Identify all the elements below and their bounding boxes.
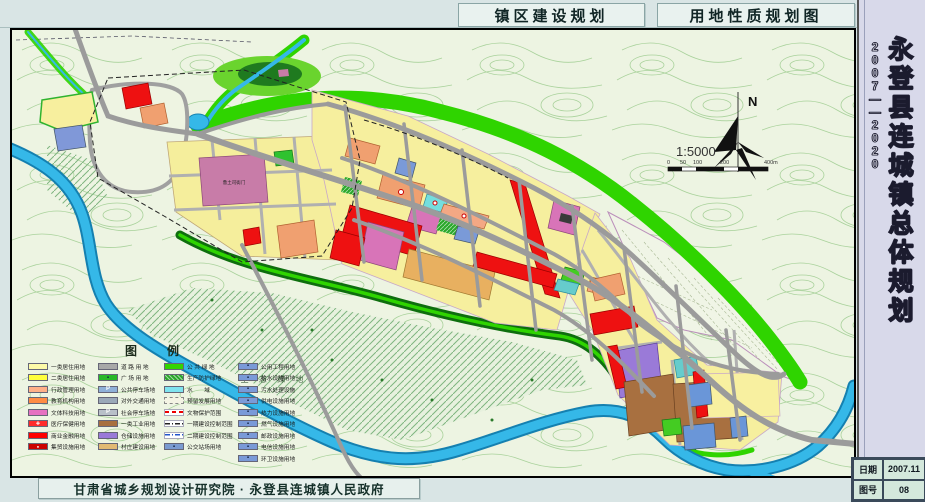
date-label: 日期: [853, 459, 883, 480]
legend-label: 文物保护范围: [187, 408, 221, 417]
legend-label: 集贸设施用地: [51, 442, 85, 451]
plan-title: 永登县连城镇总体规划: [885, 36, 913, 326]
legend-column: 一类居住用地二类居住用地行政管理用地教育机构用地文体科技用地医疗保健用地商业金融…: [28, 362, 94, 462]
legend-label: 道 路 用 地: [121, 362, 149, 371]
legend-swatch: [98, 443, 118, 450]
parcel-utility: [683, 423, 716, 450]
legend-swatch: [238, 443, 258, 450]
legend-swatch: [238, 386, 258, 393]
legend-swatch: [28, 363, 48, 370]
sheet-title-left: 镇区建设规划: [458, 3, 645, 27]
legend-item: 预留发展用地: [164, 397, 234, 405]
legend-label: 供电设施用地: [261, 396, 295, 405]
title-block-table: 日期 2007.11 图号 08: [851, 457, 925, 502]
title-sidebar: 永登县连城镇总体规划 2007——2020: [857, 0, 925, 500]
legend-label: 村庄建设用地: [121, 442, 155, 451]
sheet-title-right: 用地性质规划图: [657, 3, 855, 27]
legend-swatch: [164, 432, 184, 439]
legend-label: 生产防护绿地: [187, 373, 221, 382]
historic-site-label: 鲁土司衙门: [223, 179, 246, 186]
legend-swatch: [98, 432, 118, 439]
legend-item: 对外交通用地: [98, 397, 160, 405]
legend-item: 热力设施用地: [238, 408, 302, 416]
legend-item: 村庄建设用地: [98, 443, 160, 451]
legend-label: 公 共 绿 地: [187, 362, 215, 371]
legend-swatch: [164, 409, 184, 416]
legend-label: 水 域: [187, 385, 210, 394]
legend-label: 污水处理设施: [261, 385, 295, 394]
legend-column: 道 路 用 地广 场 用 地公共停车场地对外交通用地社会停车场地一类工业用地仓储…: [98, 362, 160, 462]
legend-label: 邮政设施用地: [261, 431, 295, 440]
legend-item: 行政管理用地: [28, 385, 94, 393]
legend-item: 生产防护绿地: [164, 374, 234, 382]
legend-item: 二期建设控制范围: [164, 431, 234, 439]
legend-item: 二类居住用地: [28, 374, 94, 382]
plan-title-vertical: 永登县连城镇总体规划 2007——2020: [869, 0, 917, 500]
sheet-number-label: 图号: [853, 480, 883, 501]
legend-label: 燃气设施用地: [261, 419, 295, 428]
legend-swatch: [238, 432, 258, 439]
legend-swatch: [98, 397, 118, 404]
pond: [187, 114, 209, 130]
legend-item: 一类工业用地: [98, 420, 160, 428]
north-label: N: [748, 94, 757, 109]
parcel-utility: [54, 125, 86, 151]
legend-label: 一类居住用地: [51, 362, 85, 371]
legend-item: 环卫设施用地: [238, 454, 302, 462]
svg-text:200: 200: [720, 160, 729, 166]
legend-label: 社会停车场地: [121, 408, 155, 417]
legend-item: 供电设施用地: [238, 397, 302, 405]
legend-item: 水 域: [164, 385, 234, 393]
legend-item: 燃气设施用地: [238, 420, 302, 428]
legend-item: 公 共 绿 地: [164, 362, 234, 370]
legend-item: 一类居住用地: [28, 362, 94, 370]
legend-swatch: [164, 443, 184, 450]
legend-item: 教育机构用地: [28, 397, 94, 405]
legend-label: 仓储设施用地: [121, 431, 155, 440]
legend-label: 教育机构用地: [51, 396, 85, 405]
legend-swatch: [164, 386, 184, 393]
legend-swatch: [28, 397, 48, 404]
legend-item: 公用工程用地: [238, 362, 302, 370]
sheet-number-value: 08: [883, 480, 925, 501]
legend-swatch: [238, 420, 258, 427]
legend-label: 公交站场用地: [187, 442, 221, 451]
legend-item: 公共停车场地: [98, 385, 160, 393]
legend-item: 文体科技用地: [28, 408, 94, 416]
legend-swatch: [164, 363, 184, 370]
sidebar-rule: [864, 0, 865, 500]
legend-swatch: [98, 386, 118, 393]
legend-swatch: [164, 420, 184, 427]
legend-columns: 一类居住用地二类居住用地行政管理用地教育机构用地文体科技用地医疗保健用地商业金融…: [28, 362, 328, 462]
legend-label: 公用工程用地: [261, 362, 295, 371]
legend-label: 预留发展用地: [187, 396, 221, 405]
legend-item: 给水设施用地: [238, 374, 302, 382]
plan-years: 2007——2020: [869, 42, 881, 500]
legend-swatch: [238, 374, 258, 381]
svg-text:100: 100: [693, 160, 702, 166]
legend-item: 污水处理设施: [238, 385, 302, 393]
legend-label: 行政管理用地: [51, 385, 85, 394]
legend-label: 文体科技用地: [51, 408, 85, 417]
legend-swatch: [28, 386, 48, 393]
legend-label: 环卫设施用地: [261, 454, 295, 463]
legend-swatch: [238, 397, 258, 404]
legend-swatch: [164, 397, 184, 404]
legend-label: 商业金融用地: [51, 431, 85, 440]
legend-label: 给水设施用地: [261, 373, 295, 382]
svg-text:50: 50: [680, 160, 686, 166]
legend-column: 公 共 绿 地生产防护绿地水 域预留发展用地文物保护范围一期建设控制范围二期建设…: [164, 362, 234, 462]
legend-label: 二类居住用地: [51, 373, 85, 382]
legend-item: 一期建设控制范围: [164, 420, 234, 428]
plan-map: N 1:5000 0 50 100 200 400m 生 态 绿 地 鲁土司衙门…: [10, 28, 856, 478]
parcel-utility: [688, 382, 712, 407]
legend-swatch: [98, 420, 118, 427]
legend-label: 公共停车场地: [121, 385, 155, 394]
legend-item: 广 场 用 地: [98, 374, 160, 382]
parcel-commercial: [243, 227, 261, 246]
parcel-education: [277, 220, 318, 258]
legend-swatch: [238, 409, 258, 416]
legend-item: 医疗保健用地: [28, 420, 94, 428]
legend-swatch: [238, 455, 258, 462]
park-hill: [213, 56, 321, 96]
legend-label: 热力设施用地: [261, 408, 295, 417]
attribution-bar: 甘肃省城乡规划设计研究院 · 永登县连城镇人民政府: [38, 478, 420, 499]
legend-item: 电信设施用地: [238, 443, 302, 451]
legend: 图 例 一类居住用地二类居住用地行政管理用地教育机构用地文体科技用地医疗保健用地…: [28, 342, 328, 462]
legend-label: 一类工业用地: [121, 419, 155, 428]
legend-swatch: [28, 374, 48, 381]
svg-text:0: 0: [667, 160, 670, 166]
legend-swatch: [98, 363, 118, 370]
legend-swatch: [28, 420, 48, 427]
legend-swatch: [28, 432, 48, 439]
legend-swatch: [98, 409, 118, 416]
legend-item: 集贸设施用地: [28, 443, 94, 451]
legend-title: 图 例: [28, 342, 278, 359]
legend-label: 对外交通用地: [121, 396, 155, 405]
legend-item: 邮政设施用地: [238, 431, 302, 439]
legend-swatch: [238, 363, 258, 370]
svg-text:400m: 400m: [764, 160, 778, 166]
legend-column: 公用工程用地给水设施用地污水处理设施供电设施用地热力设施用地燃气设施用地邮政设施…: [238, 362, 302, 462]
legend-label: 一期建设控制范围: [187, 419, 233, 428]
legend-item: 公交站场用地: [164, 443, 234, 451]
legend-swatch: [98, 374, 118, 381]
legend-swatch: [164, 374, 184, 381]
legend-swatch: [28, 409, 48, 416]
legend-item: 社会停车场地: [98, 408, 160, 416]
legend-item: 文物保护范围: [164, 408, 234, 416]
legend-label: 二期建设控制范围: [187, 431, 233, 440]
legend-swatch: [28, 443, 48, 450]
parcel-commercial: [122, 83, 152, 109]
legend-label: 医疗保健用地: [51, 419, 85, 428]
legend-item: 道 路 用 地: [98, 362, 160, 370]
legend-label: 电信设施用地: [261, 442, 295, 451]
legend-label: 广 场 用 地: [121, 373, 149, 382]
date-value: 2007.11: [883, 459, 925, 480]
scale-text: 1:5000: [676, 144, 716, 159]
legend-item: 商业金融用地: [28, 431, 94, 439]
legend-item: 仓储设施用地: [98, 431, 160, 439]
